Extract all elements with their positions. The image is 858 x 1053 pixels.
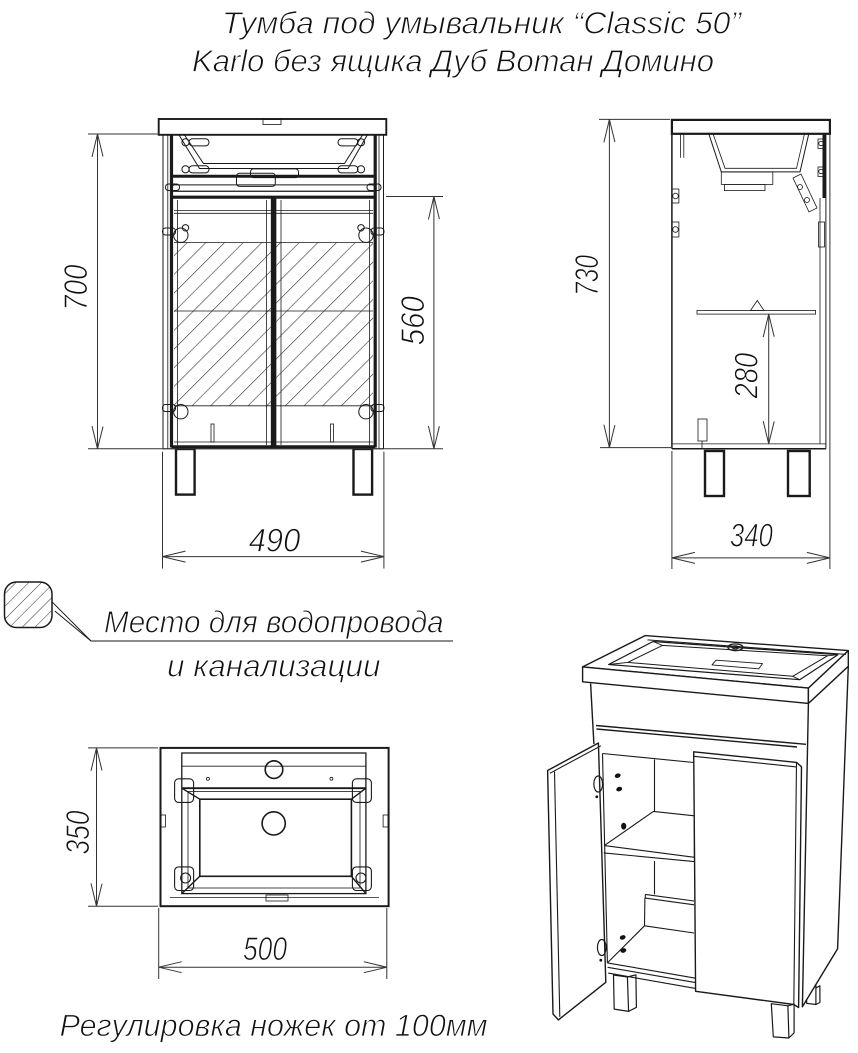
svg-text:340: 340 [730,517,774,554]
svg-text:730: 730 [568,254,605,295]
svg-text:280: 280 [727,352,764,399]
svg-text:490: 490 [249,522,301,559]
svg-text:Karlo без ящика Дуб Вотан Доми: Karlo без ящика Дуб Вотан Домино [192,44,714,79]
svg-text:700: 700 [57,264,94,311]
svg-text:Место для водопровода: Место для водопровода [104,605,444,640]
svg-text:350: 350 [59,810,96,855]
svg-text:500: 500 [243,930,288,967]
svg-text:Регулировка ножек от 100мм: Регулировка ножек от 100мм [60,1008,488,1043]
svg-text:Тумба под умывальник “Classic: Тумба под умывальник “Classic 50” [222,6,743,41]
svg-text:и канализации: и канализации [167,649,381,684]
svg-text:560: 560 [394,296,431,346]
